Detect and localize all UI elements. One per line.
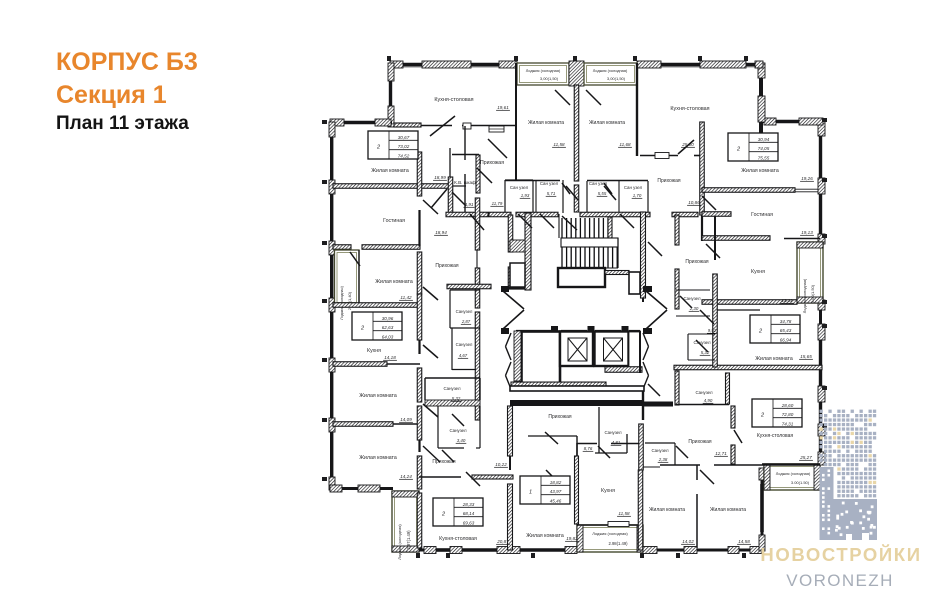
svg-text:9,92: 9,92 xyxy=(708,328,717,333)
svg-text:Жилая комната: Жилая комната xyxy=(755,356,793,362)
svg-text:Сан узел: Сан узел xyxy=(510,185,529,190)
svg-text:Жилая комната: Жилая комната xyxy=(359,393,397,399)
svg-text:34,78: 34,78 xyxy=(780,319,792,324)
svg-text:11,79: 11,79 xyxy=(492,201,503,206)
svg-text:12,71: 12,71 xyxy=(715,451,727,456)
svg-text:Жилая комната: Жилая комната xyxy=(741,168,779,174)
svg-text:Жилая комната: Жилая комната xyxy=(528,120,564,126)
svg-text:4,67: 4,67 xyxy=(459,353,468,358)
svg-text:Прихожая: Прихожая xyxy=(688,439,711,445)
svg-text:3,40: 3,40 xyxy=(457,438,466,443)
svg-text:45,46: 45,46 xyxy=(550,498,562,503)
svg-text:11,58: 11,58 xyxy=(553,142,565,147)
svg-text:18,94: 18,94 xyxy=(435,230,447,235)
svg-text:2,30: 2,30 xyxy=(689,306,699,311)
svg-text:Прихожая: Прихожая xyxy=(435,263,458,269)
svg-text:Кухня: Кухня xyxy=(601,488,615,494)
svg-text:20,87: 20,87 xyxy=(496,539,509,544)
svg-text:19,13: 19,13 xyxy=(801,230,813,235)
svg-text:28,33: 28,33 xyxy=(462,502,475,507)
svg-text:Санузел: Санузел xyxy=(695,390,713,395)
svg-text:8,76: 8,76 xyxy=(584,446,593,451)
svg-text:10,22: 10,22 xyxy=(495,462,507,467)
svg-text:5,71: 5,71 xyxy=(547,191,556,196)
svg-text:5,32: 5,32 xyxy=(452,396,461,401)
svg-text:Жилая комната: Жилая комната xyxy=(371,168,409,174)
svg-text:VORONEZH: VORONEZH xyxy=(786,571,894,590)
svg-text:Сан узел: Сан узел xyxy=(589,181,608,186)
svg-text:11,42: 11,42 xyxy=(400,295,412,300)
svg-text:30,96: 30,96 xyxy=(382,316,394,321)
svg-text:15,65: 15,65 xyxy=(800,354,812,359)
svg-text:Лоджия (холодная): Лоджия (холодная) xyxy=(593,68,628,73)
svg-text:Санузел: Санузел xyxy=(456,309,473,314)
svg-text:3,91: 3,91 xyxy=(465,202,474,207)
svg-text:Кухня-столовая: Кухня-столовая xyxy=(757,433,794,439)
svg-text:Жилая комната: Жилая комната xyxy=(526,533,564,539)
svg-text:11,58: 11,58 xyxy=(618,511,630,516)
svg-text:18,99: 18,99 xyxy=(434,175,446,180)
svg-text:75,55: 75,55 xyxy=(758,155,770,160)
svg-text:10,86: 10,86 xyxy=(688,200,700,205)
svg-text:3.00(1.50): 3.00(1.50) xyxy=(791,480,810,485)
svg-text:19,61: 19,61 xyxy=(497,105,509,110)
svg-text:2,87: 2,87 xyxy=(461,319,471,324)
svg-text:19,82: 19,82 xyxy=(566,536,578,541)
svg-text:Лоджия (холодная): Лоджия (холодная) xyxy=(802,278,807,313)
svg-text:Жилая комната: Жилая комната xyxy=(649,507,685,513)
svg-text:66,94: 66,94 xyxy=(780,337,792,342)
svg-text:Жилая комната: Жилая комната xyxy=(359,455,397,461)
svg-text:19,26: 19,26 xyxy=(801,176,813,181)
svg-text:43,97: 43,97 xyxy=(550,489,562,494)
svg-text:Сан узел: Сан узел xyxy=(540,181,559,186)
svg-text:Гостиная: Гостиная xyxy=(751,212,773,218)
svg-text:68,14: 68,14 xyxy=(463,511,475,516)
svg-text:Кухня: Кухня xyxy=(751,269,765,275)
svg-text:65,43: 65,43 xyxy=(780,328,792,333)
svg-text:Прихожая: Прихожая xyxy=(432,459,455,465)
svg-text:74,52: 74,52 xyxy=(398,153,410,158)
svg-text:14,18: 14,18 xyxy=(384,355,396,360)
svg-text:Санузел: Санузел xyxy=(456,342,473,347)
svg-text:Санузел: Санузел xyxy=(693,340,711,345)
svg-text:Кухня-столовая: Кухня-столовая xyxy=(434,97,473,103)
svg-text:4,81: 4,81 xyxy=(612,440,621,445)
svg-text:Прихожая: Прихожая xyxy=(480,160,504,166)
svg-text:Жилая комната: Жилая комната xyxy=(589,120,625,126)
svg-text:30,94: 30,94 xyxy=(758,137,770,142)
svg-text:72,80: 72,80 xyxy=(782,412,794,417)
svg-text:1,70: 1,70 xyxy=(633,193,642,198)
svg-text:Кухня-столовая: Кухня-столовая xyxy=(670,106,709,112)
svg-text:1: 1 xyxy=(529,489,532,495)
svg-text:Кухня-столовая: Кухня-столовая xyxy=(439,536,477,542)
svg-text:30,67: 30,67 xyxy=(398,135,410,140)
svg-text:13,11: 13,11 xyxy=(781,298,793,303)
svg-text:Кухня: Кухня xyxy=(367,348,381,354)
svg-text:74,31: 74,31 xyxy=(782,421,794,426)
svg-text:28,60: 28,60 xyxy=(781,403,794,408)
svg-text:2.98(1.49): 2.98(1.49) xyxy=(608,541,628,546)
svg-text:Прихожая: Прихожая xyxy=(685,259,708,265)
svg-text:74,05: 74,05 xyxy=(758,146,770,151)
svg-text:3.00(1.50): 3.00(1.50) xyxy=(810,284,815,303)
svg-text:Жилая комната: Жилая комната xyxy=(710,507,746,513)
svg-text:2.97(1.49): 2.97(1.49) xyxy=(406,530,411,550)
svg-text:Жилая комната: Жилая комната xyxy=(375,279,413,285)
svg-text:62,63: 62,63 xyxy=(382,325,394,330)
svg-text:14,09: 14,09 xyxy=(400,417,412,422)
svg-text:Лоджия (холодная): Лоджия (холодная) xyxy=(526,68,561,73)
svg-text:1,93: 1,93 xyxy=(521,193,530,198)
svg-text:73,02: 73,02 xyxy=(398,144,410,149)
svg-text:Гостиная: Гостиная xyxy=(383,218,405,224)
svg-text:Прихожая: Прихожая xyxy=(548,414,571,420)
svg-text:К.В. шкаф: К.В. шкаф xyxy=(454,180,476,185)
svg-text:Сан узел: Сан узел xyxy=(624,185,643,190)
svg-text:3,00(1,50): 3,00(1,50) xyxy=(607,76,626,81)
svg-text:14,02: 14,02 xyxy=(682,539,694,544)
svg-text:НОВОСТРОЙКИ: НОВОСТРОЙКИ xyxy=(760,544,921,565)
svg-text:5,55: 5,55 xyxy=(598,191,607,196)
svg-text:14,58: 14,58 xyxy=(738,539,750,544)
svg-text:Лоджия (холодная): Лоджия (холодная) xyxy=(592,531,628,536)
svg-text:69,63: 69,63 xyxy=(463,520,475,525)
svg-text:Санузел: Санузел xyxy=(604,430,622,435)
svg-text:3,00(1,50): 3,00(1,50) xyxy=(540,76,559,81)
svg-text:14,24: 14,24 xyxy=(400,474,412,479)
svg-text:Лоджия (холодная): Лоджия (холодная) xyxy=(397,524,402,560)
svg-text:64,03: 64,03 xyxy=(382,334,394,339)
svg-text:18,82: 18,82 xyxy=(550,480,562,485)
svg-text:Лоджия (холодная): Лоджия (холодная) xyxy=(776,471,811,476)
svg-text:11,68: 11,68 xyxy=(619,142,631,147)
svg-text:5,32: 5,32 xyxy=(701,350,710,355)
svg-text:Санузел: Санузел xyxy=(443,386,461,391)
svg-text:25,27: 25,27 xyxy=(799,455,812,460)
svg-text:Санузел: Санузел xyxy=(683,296,701,301)
svg-text:Санузел: Санузел xyxy=(651,448,669,453)
svg-text:2,38: 2,38 xyxy=(658,457,668,462)
svg-text:4,90: 4,90 xyxy=(704,398,713,403)
svg-text:Прихожая: Прихожая xyxy=(657,178,680,184)
svg-text:Санузел: Санузел xyxy=(449,428,467,433)
